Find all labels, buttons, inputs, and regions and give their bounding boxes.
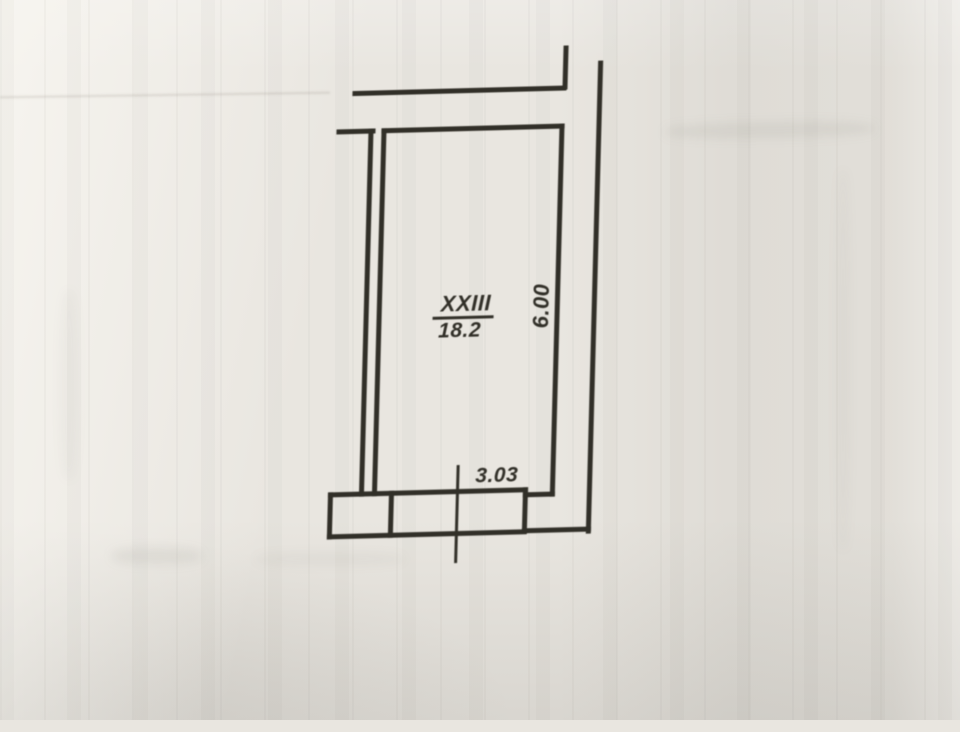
wall-corridor-top — [352, 85, 566, 96]
wall-room-left — [372, 128, 387, 496]
room-area: 18.2 — [432, 319, 494, 342]
wall-room-bottom — [328, 487, 528, 497]
dimension-vertical-label: 6.00 — [513, 275, 571, 336]
wall-outer-left — [359, 129, 374, 497]
photographed-floor-plan-page: { "plan": { "room_number": "XXIII", "roo… — [0, 0, 960, 720]
room-number: XXIII — [433, 292, 495, 320]
dimension-extension-line — [454, 465, 460, 563]
wall-bottom-step — [522, 487, 528, 533]
wall-porch-divider — [388, 491, 394, 538]
wall-outer-right — [586, 61, 603, 534]
floor-plan: XXIII 18.2 6.00 3.03 — [0, 0, 960, 732]
wall-room-top — [381, 124, 564, 134]
room-label: XXIII 18.2 — [432, 292, 494, 342]
wall-corridor-stub — [562, 45, 568, 89]
dimension-horizontal-label: 3.03 — [475, 464, 518, 486]
wall-porch-bottom-right — [522, 527, 591, 534]
wall-porch-left — [327, 492, 333, 539]
wall-porch-bottom-left — [327, 529, 527, 539]
